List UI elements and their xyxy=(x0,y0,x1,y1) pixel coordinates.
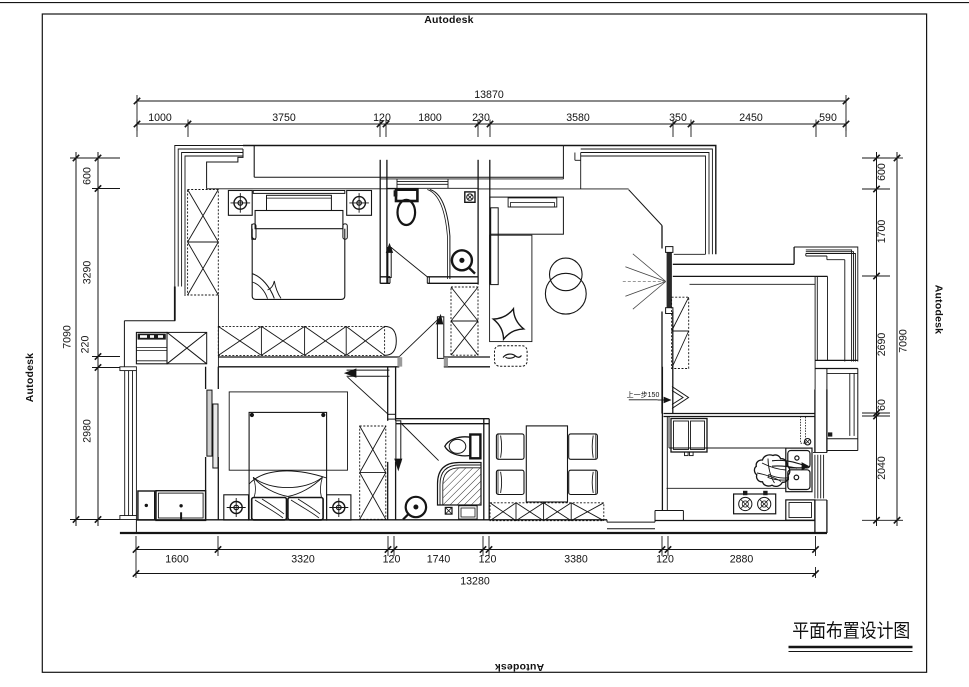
svg-text:1740: 1740 xyxy=(427,554,451,566)
svg-text:Autodesk: Autodesk xyxy=(424,14,473,26)
svg-text:1800: 1800 xyxy=(418,112,442,124)
svg-text:590: 590 xyxy=(819,112,837,124)
svg-text:2450: 2450 xyxy=(739,112,763,124)
svg-text:3750: 3750 xyxy=(272,112,296,124)
svg-text:Autodesk: Autodesk xyxy=(933,285,945,334)
svg-text:3380: 3380 xyxy=(564,554,588,566)
svg-text:60: 60 xyxy=(876,399,888,411)
svg-text:220: 220 xyxy=(80,336,92,354)
svg-text:1000: 1000 xyxy=(148,112,172,124)
svg-text:1600: 1600 xyxy=(165,554,189,566)
svg-text:平面布置设计图: 平面布置设计图 xyxy=(792,620,910,642)
svg-text:120: 120 xyxy=(479,554,497,566)
svg-text:120: 120 xyxy=(373,112,391,124)
svg-text:2980: 2980 xyxy=(82,419,94,443)
svg-text:600: 600 xyxy=(82,167,94,185)
svg-text:上一步150: 上一步150 xyxy=(627,390,660,399)
svg-text:3580: 3580 xyxy=(566,112,590,124)
svg-text:120: 120 xyxy=(383,554,401,566)
svg-text:2690: 2690 xyxy=(876,333,888,357)
svg-text:3320: 3320 xyxy=(291,554,315,566)
svg-text:120: 120 xyxy=(656,554,674,566)
svg-text:7090: 7090 xyxy=(62,325,74,349)
svg-text:350: 350 xyxy=(669,112,687,124)
svg-text:3290: 3290 xyxy=(82,261,94,285)
svg-text:Autodesk: Autodesk xyxy=(24,353,36,402)
svg-text:13870: 13870 xyxy=(474,89,504,101)
svg-text:Autodesk: Autodesk xyxy=(495,661,544,673)
svg-text:230: 230 xyxy=(472,112,490,124)
svg-text:13280: 13280 xyxy=(460,576,490,588)
svg-text:600: 600 xyxy=(876,163,888,181)
svg-text:1700: 1700 xyxy=(876,220,888,244)
svg-text:2040: 2040 xyxy=(876,456,888,480)
svg-text:2880: 2880 xyxy=(730,554,754,566)
svg-text:7090: 7090 xyxy=(898,329,910,353)
